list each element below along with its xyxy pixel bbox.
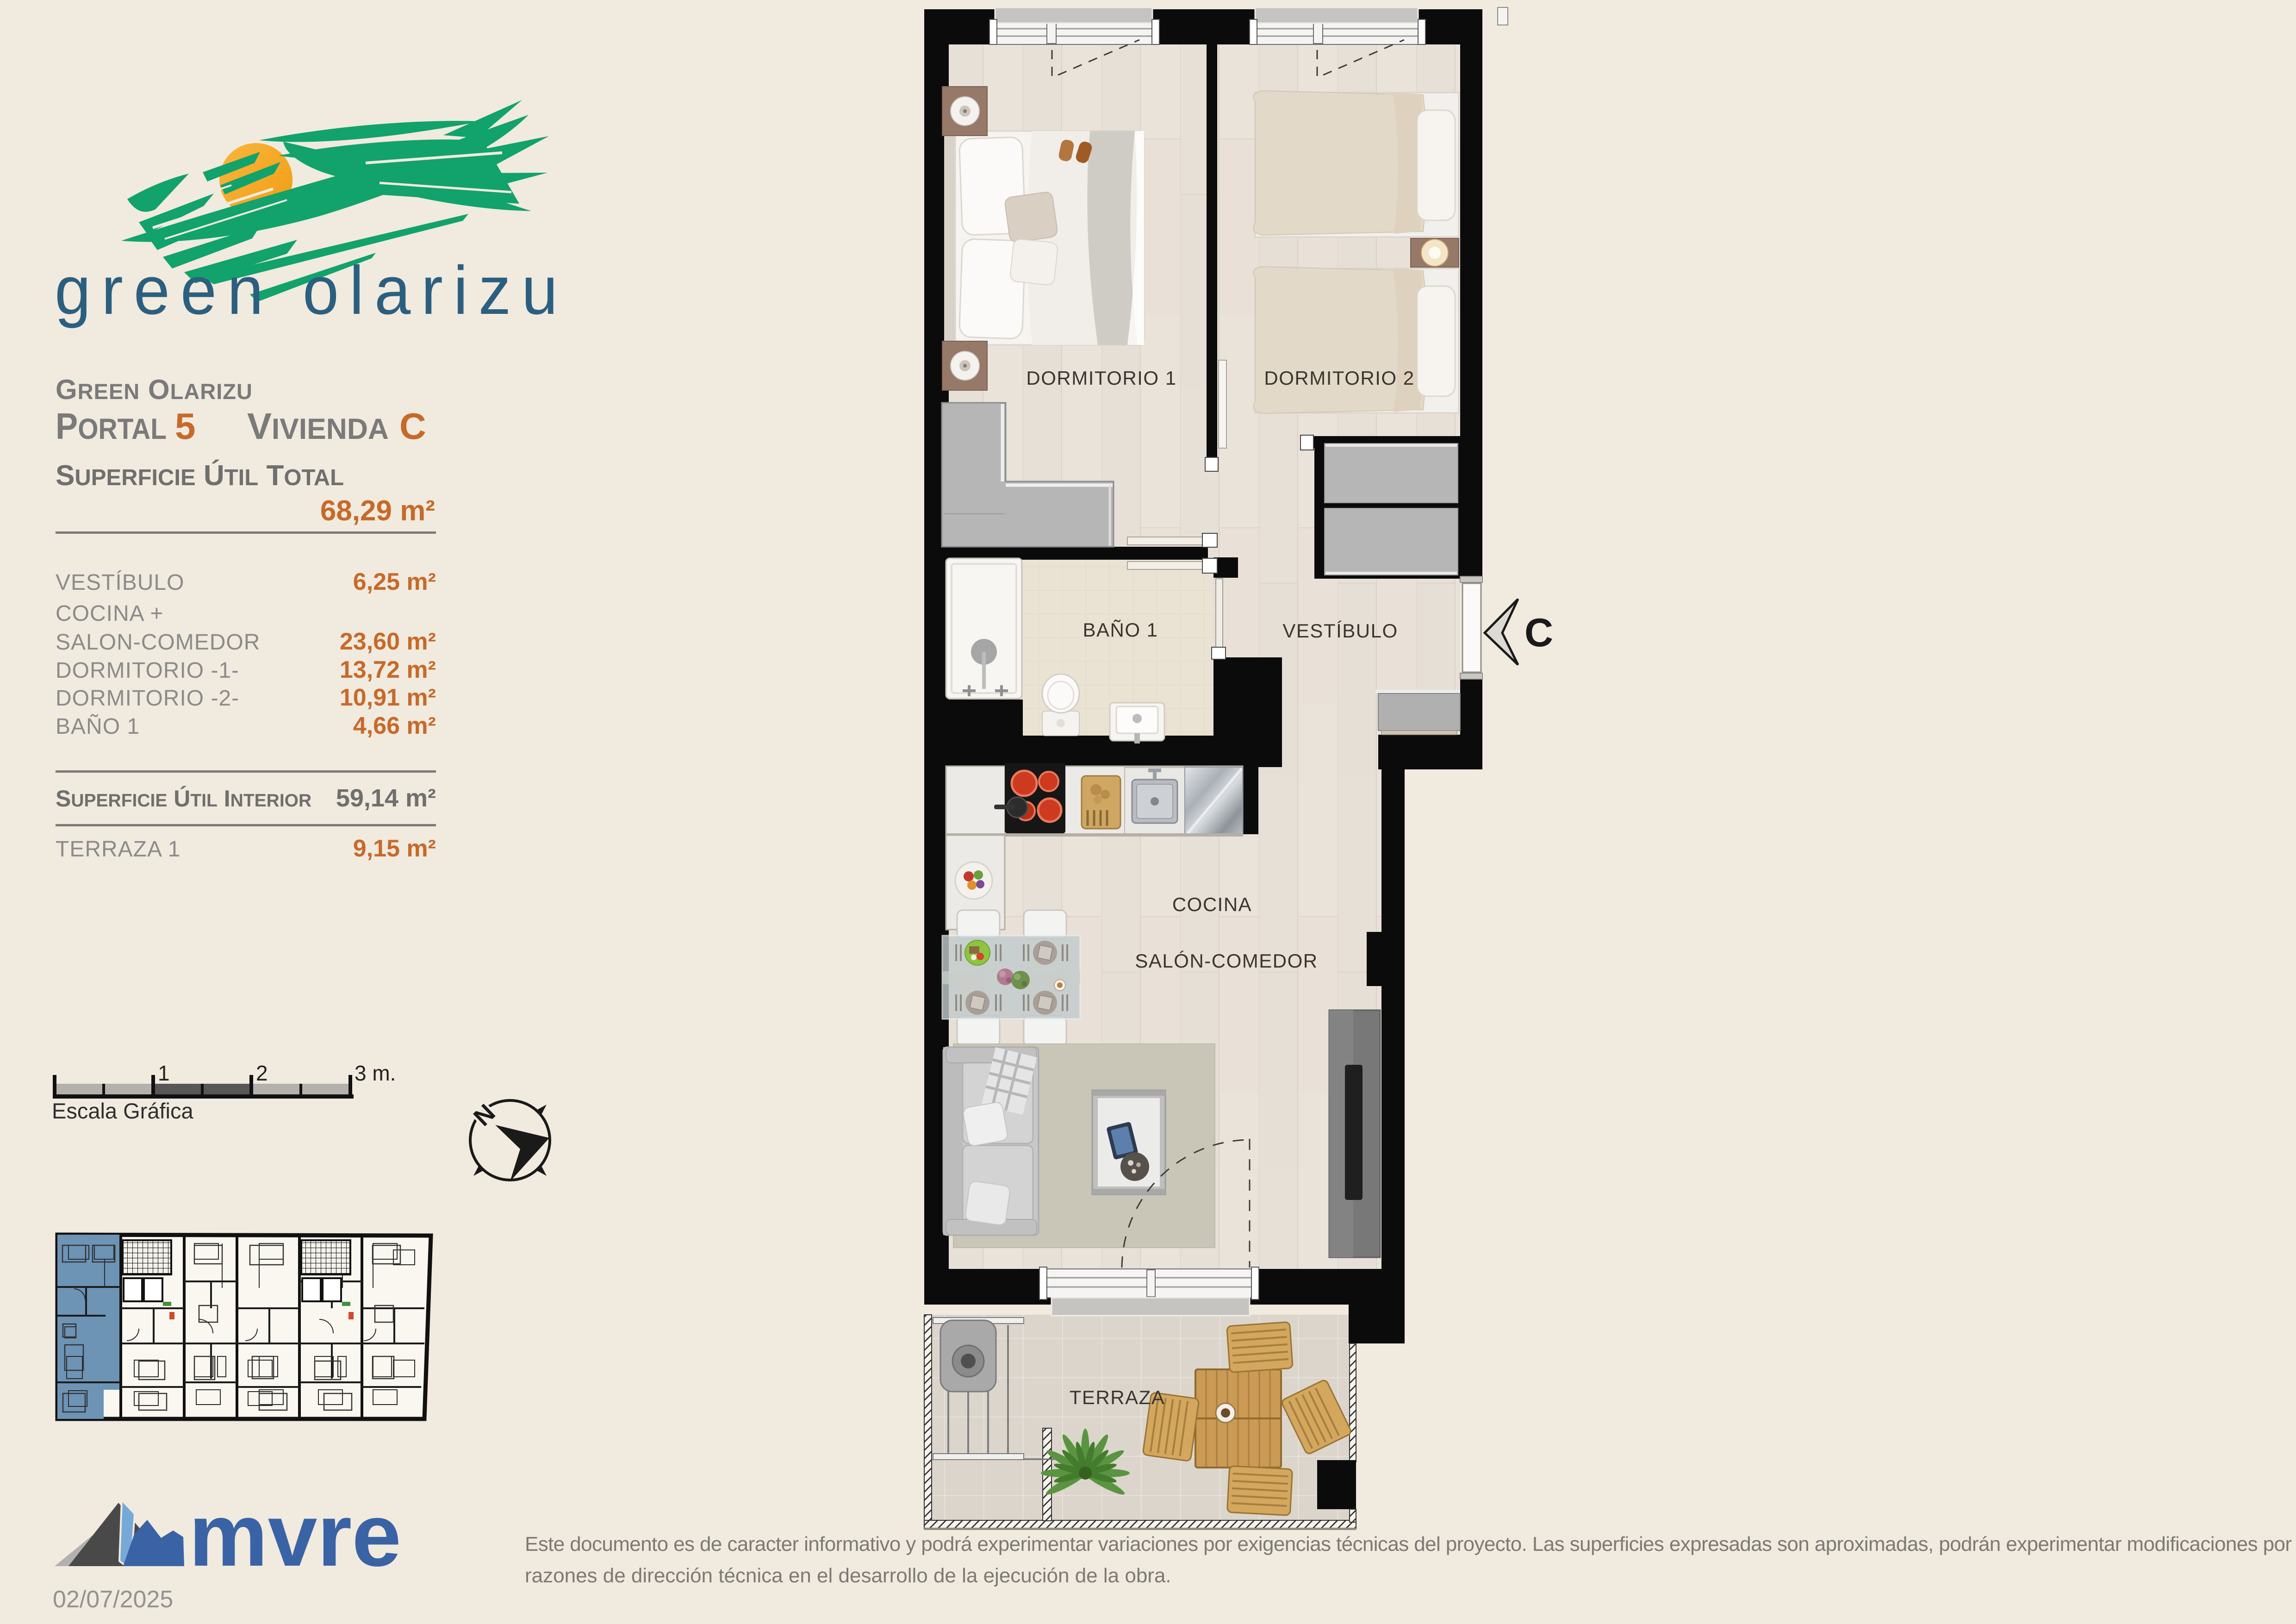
svg-text:COCINA +: COCINA + — [56, 601, 163, 626]
svg-text:SALON-COMEDOR: SALON-COMEDOR — [56, 630, 260, 655]
svg-text:TERRAZA: TERRAZA — [1070, 1387, 1165, 1408]
svg-text:6,25 m²: 6,25 m² — [353, 568, 436, 595]
svg-text:VESTÍBULO: VESTÍBULO — [1282, 620, 1398, 642]
svg-text:green olarizu: green olarizu — [55, 252, 568, 329]
svg-text:3 m.: 3 m. — [355, 1061, 396, 1085]
svg-text:4,66 m²: 4,66 m² — [353, 712, 436, 739]
svg-text:23,60 m²: 23,60 m² — [340, 628, 436, 655]
svg-text:9,15 m²: 9,15 m² — [353, 835, 436, 862]
svg-text:DORMITORIO 1: DORMITORIO 1 — [1026, 367, 1176, 389]
svg-text:Este documento es de caracter: Este documento es de caracter informativ… — [525, 1533, 2292, 1555]
svg-text:GREEN OLARIZU: GREEN OLARIZU — [56, 374, 253, 405]
svg-text:10,91 m²: 10,91 m² — [340, 684, 436, 711]
svg-text:mvre: mvre — [189, 1485, 401, 1585]
svg-text:C: C — [1524, 611, 1553, 655]
svg-text:VESTÍBULO: VESTÍBULO — [56, 570, 184, 595]
svg-text:BAÑO 1: BAÑO 1 — [1083, 619, 1158, 641]
svg-text:1: 1 — [158, 1061, 170, 1085]
svg-text:02/07/2025: 02/07/2025 — [53, 1586, 173, 1613]
svg-text:2: 2 — [256, 1061, 268, 1085]
svg-text:BAÑO 1: BAÑO 1 — [56, 714, 140, 739]
svg-text:C: C — [399, 406, 426, 447]
svg-text:5: 5 — [175, 406, 196, 447]
svg-text:59,14 m²: 59,14 m² — [336, 784, 436, 812]
svg-text:DORMITORIO -2-: DORMITORIO -2- — [56, 686, 239, 711]
svg-text:DORMITORIO 2: DORMITORIO 2 — [1264, 367, 1414, 389]
svg-text:SALÓN-COMEDOR: SALÓN-COMEDOR — [1135, 950, 1318, 972]
svg-text:TERRAZA 1: TERRAZA 1 — [56, 837, 180, 862]
svg-text:DORMITORIO -1-: DORMITORIO -1- — [56, 658, 239, 683]
svg-text:68,29 m²: 68,29 m² — [320, 495, 435, 527]
svg-text:COCINA: COCINA — [1172, 893, 1252, 915]
svg-text:Escala Gráfica: Escala Gráfica — [52, 1099, 193, 1123]
svg-text:13,72 m²: 13,72 m² — [340, 656, 436, 683]
svg-text:razones de dirección técnica e: razones de dirección técnica en el desar… — [525, 1564, 1171, 1587]
